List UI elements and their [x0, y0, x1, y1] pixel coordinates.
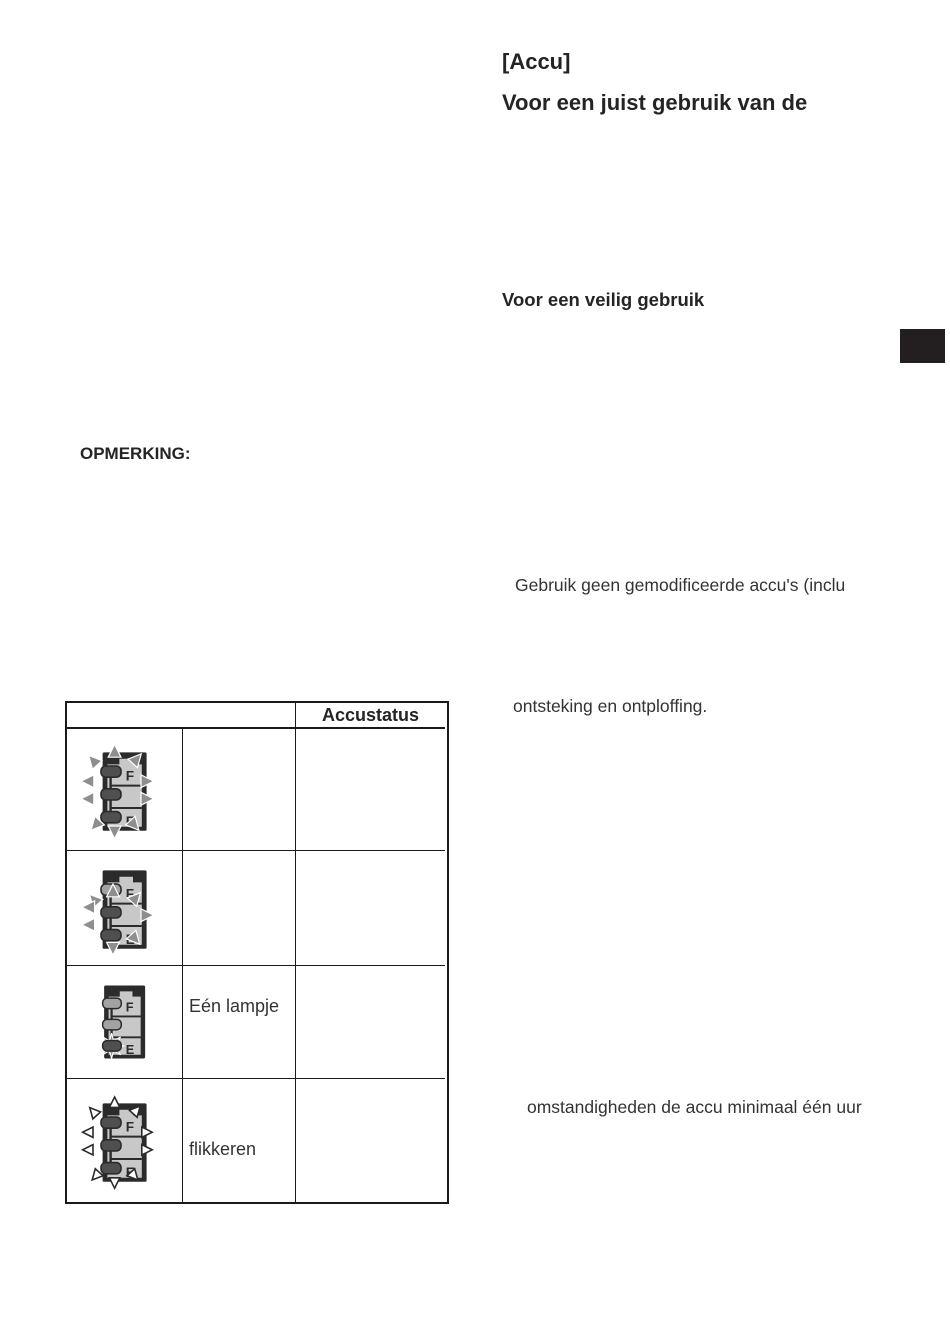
battery-two-lamps-flashing-icon: F E	[81, 856, 169, 960]
battery-one-lamp-flashing-icon: F E	[84, 972, 166, 1072]
paragraph-fragment: ontsteking en ontploffing.	[513, 696, 707, 717]
section-title: Voor een juist gebruik van de	[502, 90, 807, 115]
battery-status-cell	[296, 966, 445, 1079]
battery-description-cell: Eén lampje	[183, 966, 296, 1079]
battery-lamps-flickering-icon: F E	[81, 1088, 169, 1194]
table-row: F E	[67, 966, 183, 1079]
full-mark: F	[125, 1001, 133, 1015]
battery-all-lamps-flashing-icon: F E	[81, 738, 169, 842]
battery-description-cell	[183, 729, 296, 851]
paragraph-fragment: omstandigheden de accu minimaal één uur	[527, 1097, 862, 1118]
full-mark: F	[125, 768, 133, 783]
paragraph-fragment: Gebruik geen gemodificeerde accu's (incl…	[515, 575, 845, 596]
table-header-accustatus: Accustatus	[296, 703, 445, 729]
subsection-heading: Voor een veilig gebruik	[502, 289, 704, 311]
manual-page: [Accu] Voor een juist gebruik van de Voo…	[0, 0, 950, 1344]
battery-description: Eén lampje	[189, 966, 279, 1017]
battery-status-cell	[296, 851, 445, 966]
battery-status-cell	[296, 729, 445, 851]
empty-mark: E	[125, 1043, 133, 1057]
battery-status-cell	[296, 1079, 445, 1202]
full-mark: F	[125, 1119, 133, 1134]
note-label: OPMERKING:	[80, 444, 191, 464]
battery-status-table: Accustatus F E	[65, 701, 449, 1204]
table-header-empty-cell	[67, 703, 296, 729]
page-edge-tab	[900, 329, 945, 363]
table-row: F E	[67, 729, 183, 851]
battery-description: flikkeren	[189, 1079, 256, 1160]
section-title-bracket: [Accu]	[502, 49, 570, 74]
battery-description-cell: flikkeren	[183, 1079, 296, 1202]
table-row: F E	[67, 851, 183, 966]
battery-description-cell	[183, 851, 296, 966]
table-row: F E	[67, 1079, 183, 1202]
